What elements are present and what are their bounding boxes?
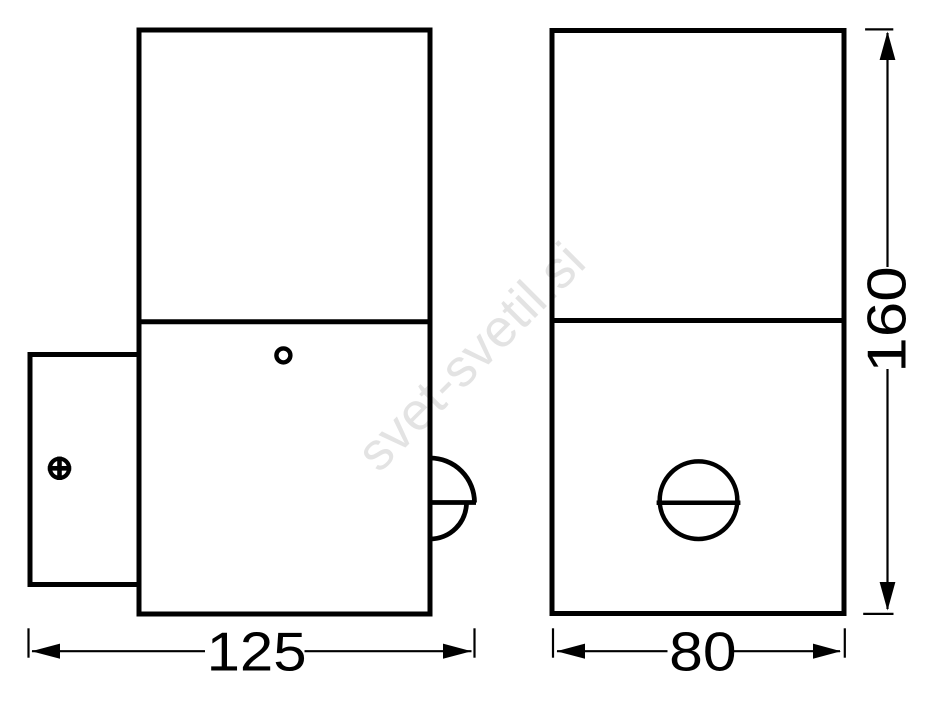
svg-text:125: 125	[207, 620, 307, 682]
svg-text:160: 160	[856, 266, 918, 373]
svg-text:80: 80	[669, 620, 737, 682]
